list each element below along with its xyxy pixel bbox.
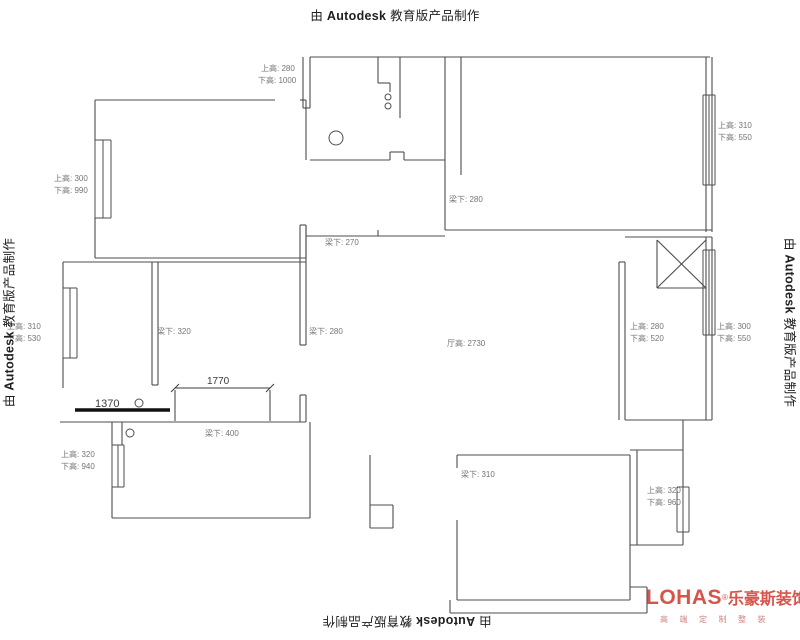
edu-stamp-prefix: 由 <box>783 238 797 251</box>
plan-annotation: 上高: 280 <box>630 321 664 331</box>
floor-plan-page: 上高: 280下高: 1000上高: 300下高: 990上高: 310下高: … <box>0 0 800 640</box>
autodesk-brand-text: Autodesk <box>327 9 386 23</box>
edu-stamp-left: 由 Autodesk 教育版产品制作 <box>0 208 18 438</box>
lohas-logo-name: LOHAS <box>646 586 722 609</box>
lohas-logo-row: LOHAS®乐豪斯装饰 <box>646 587 798 611</box>
edu-stamp-suffix: 教育版产品制作 <box>322 614 412 628</box>
plan-annotation: 上高: 300 <box>717 321 751 331</box>
lohas-logo: LOHAS®乐豪斯装饰 高端定制整装 <box>646 587 798 625</box>
fixture-circle <box>126 429 134 437</box>
plan-annotation: 下高: 550 <box>718 132 752 142</box>
plan-annotation: 下高: 550 <box>717 333 751 343</box>
plan-annotation: 下高: 520 <box>630 333 664 343</box>
plan-annotation: 梁下: 320 <box>157 327 191 336</box>
edu-stamp-right: 由 Autodesk 教育版产品制作 <box>782 208 800 438</box>
edu-stamp-bottom: 由 Autodesk 教育版产品制作 <box>292 613 522 632</box>
plan-annotation: 下高: 940 <box>61 461 95 471</box>
plan-annotation: 梁下: 280 <box>449 195 483 204</box>
plan-annotation: 梁下: 310 <box>461 470 495 479</box>
plan-annotation: 下高: 1000 <box>258 75 297 85</box>
plan-annotation: 厅高: 2730 <box>447 338 486 348</box>
plan-annotation: 上高: 280 <box>261 63 295 73</box>
plan-annotation: 下高: 990 <box>54 185 88 195</box>
fixture-circle <box>385 94 391 100</box>
plan-annotation: 下高: 960 <box>647 497 681 507</box>
floor-plan-drawing: 上高: 280下高: 1000上高: 300下高: 990上高: 310下高: … <box>0 0 800 640</box>
lohas-logo-tagline: 高端定制整装 <box>660 614 798 625</box>
dimension-text: 1370 <box>95 398 119 410</box>
plan-annotation: 上高: 320 <box>61 449 95 459</box>
plan-annotation: 上高: 310 <box>718 120 752 130</box>
edu-stamp-suffix: 教育版产品制作 <box>390 9 480 23</box>
autodesk-brand-text: Autodesk <box>416 614 475 628</box>
autodesk-brand-text: Autodesk <box>3 331 17 390</box>
plan-annotation: 上高: 300 <box>54 173 88 183</box>
plan-annotation: 梁下: 400 <box>205 429 239 438</box>
edu-stamp-top: 由 Autodesk 教育版产品制作 <box>280 5 510 24</box>
plan-annotation: 梁下: 270 <box>325 238 359 247</box>
fixture-circle <box>385 103 391 109</box>
edu-stamp-prefix: 由 <box>310 9 323 23</box>
plan-annotation: 上高: 320 <box>647 485 681 495</box>
edu-stamp-prefix: 由 <box>479 614 492 628</box>
edu-stamp-prefix: 由 <box>3 394 17 407</box>
autodesk-brand-text: Autodesk <box>783 254 797 313</box>
dimension-text: 1770 <box>207 376 230 387</box>
lohas-logo-chinese: 乐豪斯装饰 <box>728 591 800 608</box>
fixture-circle <box>135 399 143 407</box>
edu-stamp-suffix: 教育版产品制作 <box>3 238 17 328</box>
fixture-circle <box>329 131 343 145</box>
edu-stamp-suffix: 教育版产品制作 <box>783 318 797 408</box>
plan-annotation: 梁下: 280 <box>309 327 343 336</box>
